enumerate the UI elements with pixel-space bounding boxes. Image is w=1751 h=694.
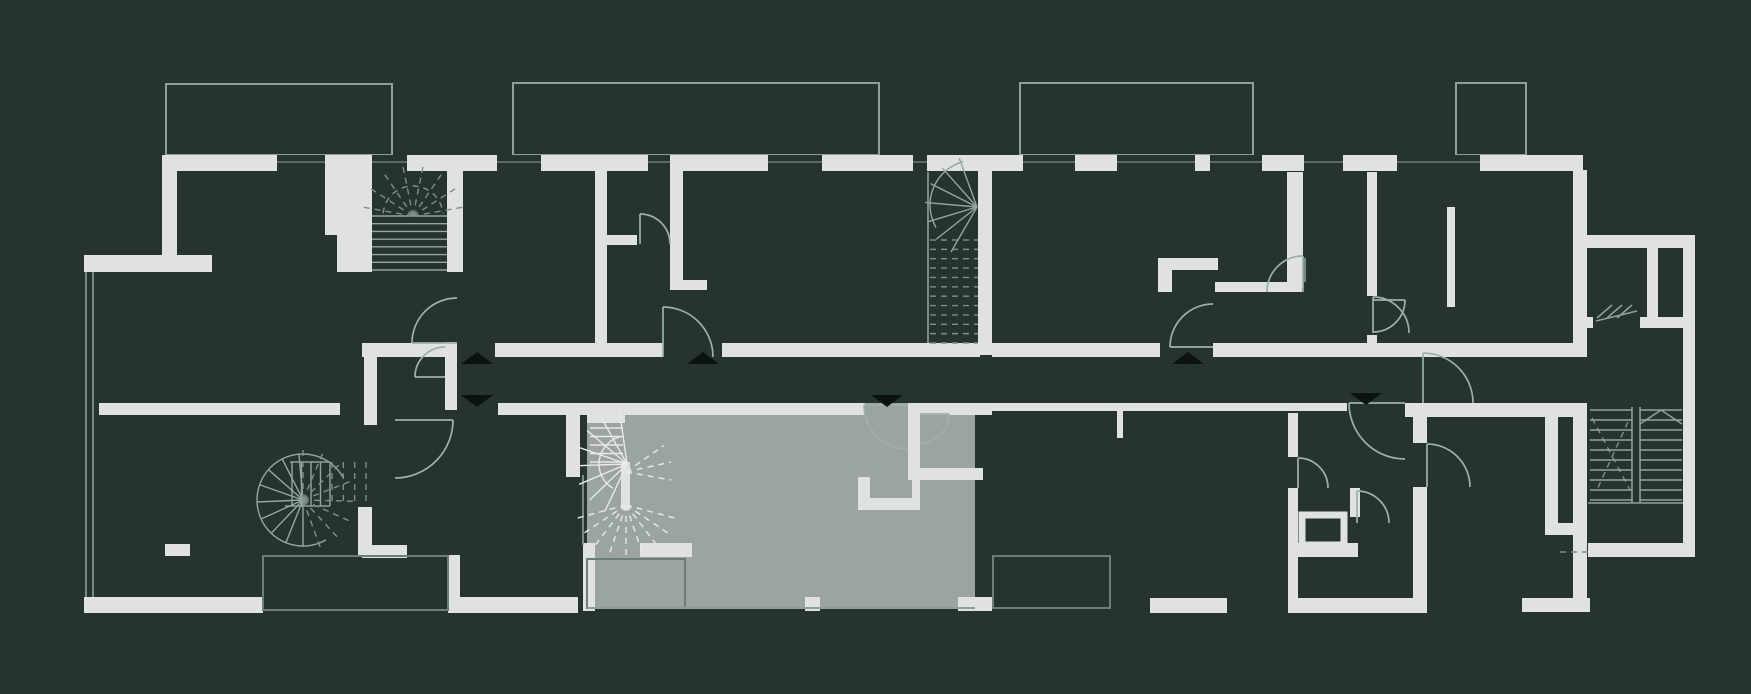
floor-plan-canvas[interactable] [0,0,1751,694]
exterior-top-wall [162,155,1583,171]
floor-plan-viewer [0,0,1751,694]
